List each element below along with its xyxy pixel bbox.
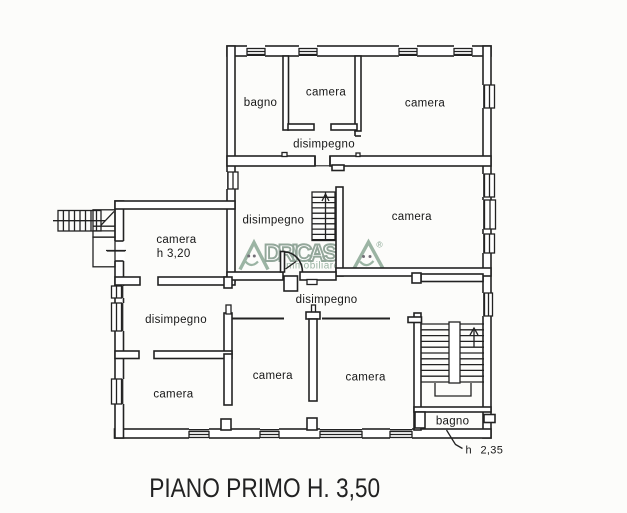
- svg-text:disimpegno: disimpegno: [242, 215, 304, 227]
- svg-text:camera: camera: [405, 98, 445, 110]
- svg-text:PIANO PRIMO H. 3,50: PIANO PRIMO H. 3,50: [149, 473, 380, 503]
- svg-text:disimpegno: disimpegno: [296, 294, 358, 306]
- svg-text:camera: camera: [153, 389, 193, 401]
- svg-text:disimpegno: disimpegno: [145, 314, 207, 326]
- svg-text:camera: camera: [306, 87, 346, 99]
- svg-text:camera: camera: [156, 234, 196, 246]
- svg-text:camera: camera: [346, 372, 386, 384]
- svg-text:bagno: bagno: [436, 416, 469, 428]
- svg-text:bagno: bagno: [244, 97, 277, 109]
- svg-text:camera: camera: [392, 211, 432, 223]
- svg-text:h: h: [466, 445, 472, 457]
- svg-text:2,35: 2,35: [481, 445, 504, 457]
- svg-text:disimpegno: disimpegno: [293, 139, 355, 151]
- svg-text:h 3,20: h 3,20: [157, 248, 191, 260]
- svg-text:camera: camera: [253, 370, 293, 382]
- svg-text:®: ®: [376, 240, 383, 250]
- svg-text:immobiliare: immobiliare: [283, 261, 339, 272]
